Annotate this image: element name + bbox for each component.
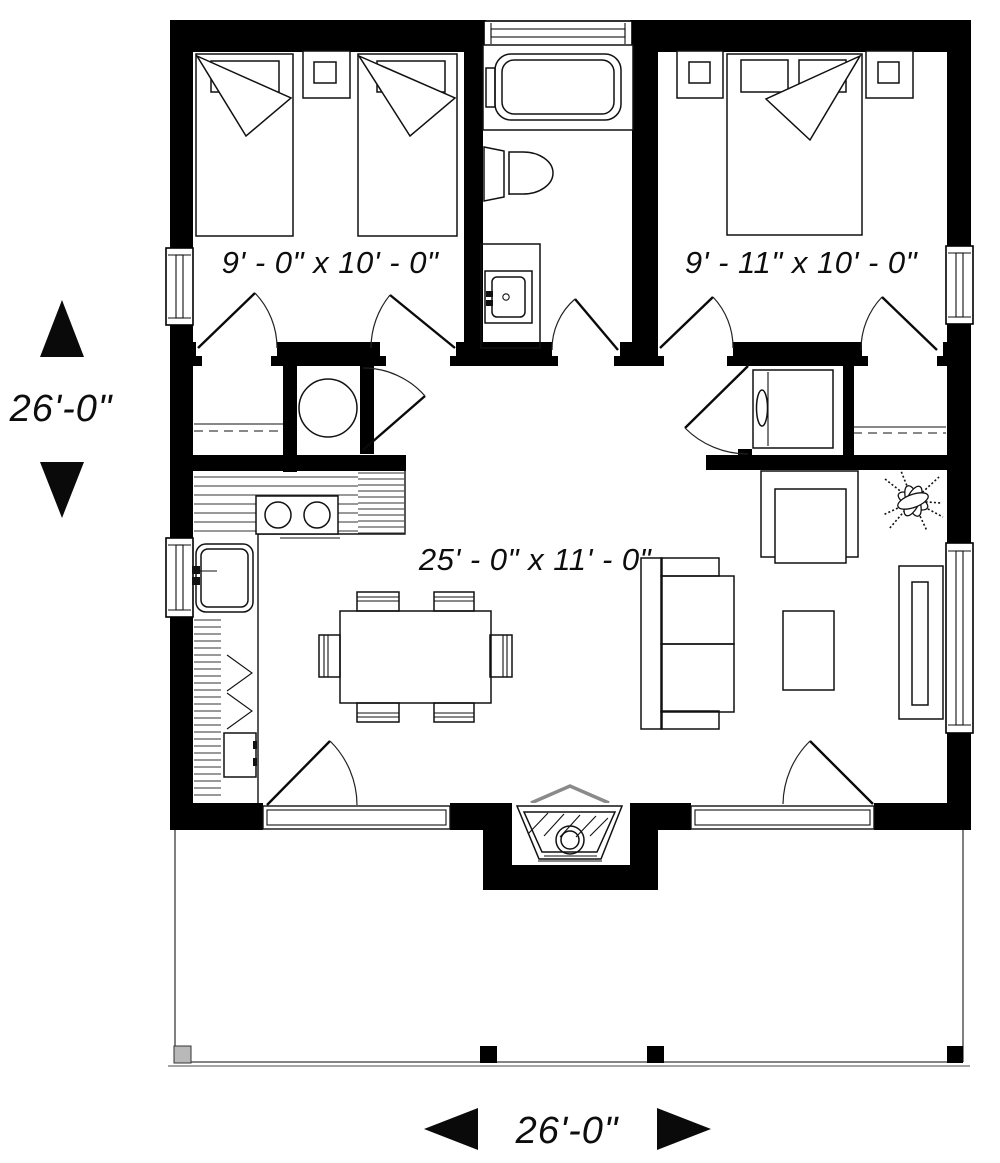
toilet [484, 147, 553, 201]
dining-chair [357, 703, 399, 722]
nightstand [677, 51, 723, 98]
water-heater-tank [299, 379, 357, 437]
porch-post [947, 1046, 963, 1063]
bedroom-right-label: 9' - 11" x 10' - 0" [685, 245, 919, 280]
washer [753, 370, 833, 448]
sofa [641, 558, 734, 729]
door-entry-right [783, 741, 873, 804]
dining-table [340, 611, 491, 703]
porch-post [647, 1046, 664, 1063]
arrow-up-icon [40, 300, 84, 357]
porch-post [480, 1046, 497, 1063]
dining-set [319, 592, 512, 722]
porch-post [174, 1046, 191, 1063]
door-bedroom-left [371, 295, 455, 348]
bathtub [483, 45, 633, 130]
floor-plan-page: 9' - 0" x 10' - 0" 9' - 11" x 10' - 0" 2… [0, 0, 1000, 1163]
kitchen-sink [192, 544, 253, 612]
arrow-right-icon [657, 1108, 711, 1150]
window-bathroom-top [484, 21, 632, 46]
base-cabinet [224, 733, 257, 777]
bifold-door-symbol [227, 655, 252, 729]
living-room [641, 471, 943, 729]
window-kitchen-left [166, 538, 193, 617]
bedroom-left [196, 51, 457, 236]
upper-cabinet-hatch-dense [358, 473, 404, 533]
range-cooktop [256, 496, 340, 538]
closet-rod-right [853, 427, 946, 433]
door-entry-left [267, 741, 357, 805]
nightstand [303, 51, 350, 98]
window-bedroom-right [946, 246, 973, 324]
door-laundry-closet [685, 366, 748, 454]
living-area-label: 25' - 0" x 11' - 0" [418, 542, 653, 577]
dining-chair [319, 635, 340, 677]
dimension-bottom-label: 26'-0" [515, 1110, 619, 1152]
closets [194, 370, 946, 448]
bedroom-right [677, 51, 913, 235]
pantry-shelves [194, 620, 221, 795]
bathroom [481, 45, 633, 348]
vanity-sink [481, 244, 540, 348]
door-bathroom [552, 299, 618, 350]
dining-chair [434, 592, 474, 611]
arrow-left-icon [424, 1108, 478, 1150]
potted-plant [883, 471, 943, 531]
coffee-table [783, 611, 834, 690]
roof-peak-line [531, 786, 609, 803]
nightstand [866, 51, 913, 98]
window-living-right [946, 543, 973, 733]
dining-chair [490, 635, 512, 677]
door-bedroom-left-closet [198, 293, 277, 348]
bedroom-left-label: 9' - 0" x 10' - 0" [222, 245, 440, 280]
dimension-left-label: 26'-0" [9, 388, 113, 430]
window-bedroom-left [166, 248, 193, 325]
armchair [761, 471, 858, 563]
door-bedroom-right [660, 297, 733, 348]
arrow-down-icon [40, 462, 84, 518]
dimension-bottom: 26'-0" [424, 1108, 711, 1152]
dimension-left: 26'-0" [9, 300, 113, 518]
floor-plan-canvas: 9' - 0" x 10' - 0" 9' - 11" x 10' - 0" 2… [0, 0, 1000, 1163]
door-bedroom-right-closet [861, 297, 937, 350]
dining-chair [434, 703, 474, 722]
tv-console [899, 566, 943, 719]
closet-rod-left [194, 424, 283, 431]
dining-chair [357, 592, 399, 611]
